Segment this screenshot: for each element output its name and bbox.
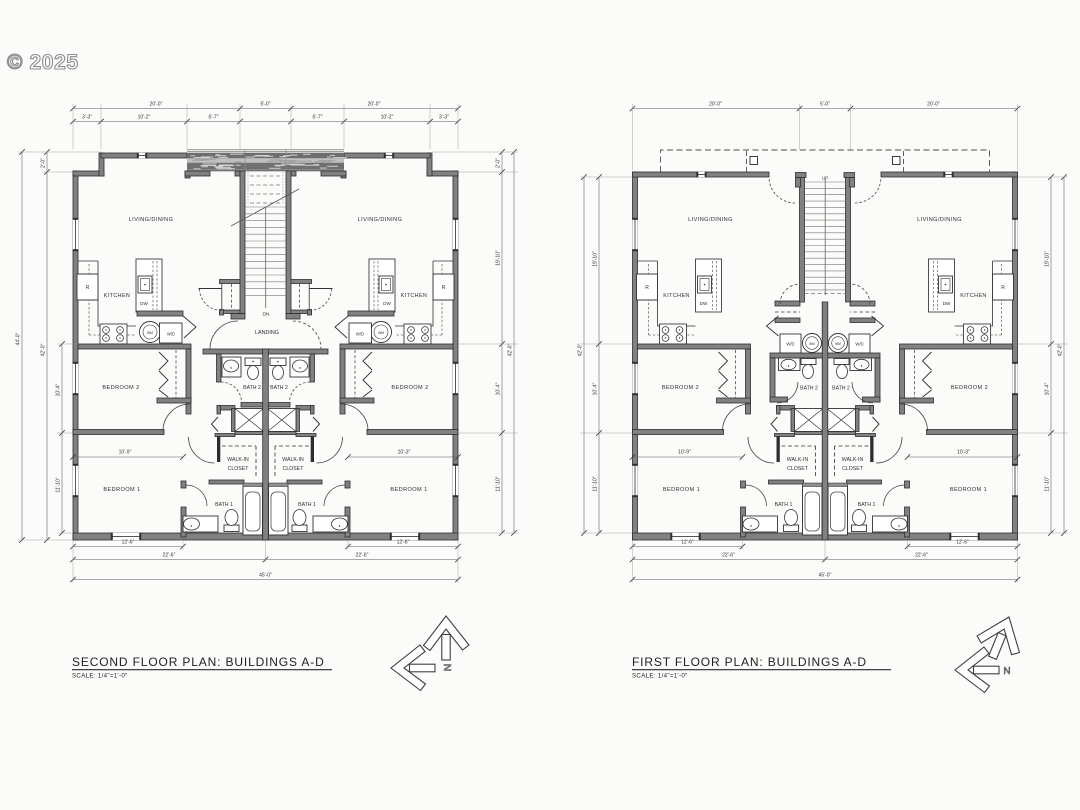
svg-text:SCALE: 1/4"=1'-0": SCALE: 1/4"=1'-0" xyxy=(632,673,688,680)
svg-text:R: R xyxy=(442,285,446,291)
svg-text:DW: DW xyxy=(700,301,708,306)
svg-text:W/D: W/D xyxy=(356,332,364,337)
svg-text:22'-6": 22'-6" xyxy=(722,553,735,559)
svg-text:6'-7": 6'-7" xyxy=(209,115,219,121)
svg-text:BEDROOM 2: BEDROOM 2 xyxy=(102,385,139,391)
svg-text:BEDROOM 1: BEDROOM 1 xyxy=(390,487,427,493)
svg-text:20'-0": 20'-0" xyxy=(150,102,163,108)
svg-text:WM: WM xyxy=(809,342,815,346)
svg-text:6'-7": 6'-7" xyxy=(313,115,323,121)
svg-text:42'-0": 42'-0" xyxy=(41,343,47,356)
svg-text:LIVING/DINING: LIVING/DINING xyxy=(129,217,174,223)
svg-text:WM: WM xyxy=(835,342,841,346)
svg-text:W/D: W/D xyxy=(167,332,175,337)
svg-text:SECOND FLOOR PLAN: BUILDINGS A: SECOND FLOOR PLAN: BUILDINGS A-D xyxy=(72,655,325,669)
svg-text:DN: DN xyxy=(263,312,270,318)
svg-text:5'-0": 5'-0" xyxy=(261,102,271,108)
svg-text:22'-6": 22'-6" xyxy=(356,553,369,559)
svg-text:N: N xyxy=(1003,666,1010,677)
svg-text:BATH 1: BATH 1 xyxy=(775,502,793,508)
svg-text:45'-0": 45'-0" xyxy=(819,573,832,579)
svg-text:11'-10": 11'-10" xyxy=(496,476,502,491)
svg-text:WM: WM xyxy=(147,331,153,335)
svg-text:19'-10": 19'-10" xyxy=(1045,251,1051,267)
svg-text:10'-4": 10'-4" xyxy=(496,382,502,395)
svg-text:BEDROOM 2: BEDROOM 2 xyxy=(391,385,428,391)
svg-text:22'-6": 22'-6" xyxy=(163,553,176,559)
svg-text:CLOSET: CLOSET xyxy=(228,466,250,472)
svg-text:BATH 2: BATH 2 xyxy=(832,386,850,392)
svg-text:SCALE: 1/4"=1'-0": SCALE: 1/4"=1'-0" xyxy=(72,673,128,680)
svg-text:42'-0": 42'-0" xyxy=(1058,343,1064,356)
svg-text:WALK-IN: WALK-IN xyxy=(282,457,304,463)
svg-text:10'-9": 10'-9" xyxy=(678,450,691,456)
svg-text:BEDROOM 1: BEDROOM 1 xyxy=(950,487,987,493)
svg-text:DW: DW xyxy=(943,301,951,306)
svg-text:19'-10": 19'-10" xyxy=(496,250,502,266)
svg-text:10'-4": 10'-4" xyxy=(593,382,599,395)
svg-text:19'-10": 19'-10" xyxy=(593,251,599,267)
svg-text:W/D: W/D xyxy=(786,342,794,347)
svg-text:2'-0": 2'-0" xyxy=(496,158,502,168)
svg-text:11'-10": 11'-10" xyxy=(1045,476,1051,491)
svg-text:BATH 2: BATH 2 xyxy=(800,386,818,392)
svg-text:BATH 1: BATH 1 xyxy=(215,502,233,508)
svg-text:12'-6": 12'-6" xyxy=(681,540,694,546)
svg-text:FIRST FLOOR PLAN: BUILDINGS A-: FIRST FLOOR PLAN: BUILDINGS A-D xyxy=(632,655,867,669)
svg-text:BEDROOM 2: BEDROOM 2 xyxy=(951,385,988,391)
svg-text:11'-10": 11'-10" xyxy=(56,477,62,492)
svg-text:UP: UP xyxy=(822,176,828,181)
svg-text:10'-9": 10'-9" xyxy=(119,450,132,456)
svg-text:WALK-IN: WALK-IN xyxy=(787,457,809,463)
svg-text:BATH 2: BATH 2 xyxy=(270,385,288,391)
svg-text:LIVING/DINING: LIVING/DINING xyxy=(917,217,962,223)
svg-text:5'-0": 5'-0" xyxy=(820,102,830,108)
svg-text:BATH 1: BATH 1 xyxy=(858,502,876,508)
svg-text:DW: DW xyxy=(140,301,148,306)
svg-text:LIVING/DINING: LIVING/DINING xyxy=(688,217,733,223)
svg-text:45'-0": 45'-0" xyxy=(259,573,272,579)
svg-text:WALK-IN: WALK-IN xyxy=(842,457,864,463)
svg-text:2'-0": 2'-0" xyxy=(41,158,47,168)
svg-text:CLOSET: CLOSET xyxy=(842,466,864,472)
svg-text:10'-2": 10'-2" xyxy=(138,115,151,121)
svg-text:DW: DW xyxy=(383,301,391,306)
svg-text:LIVING/DINING: LIVING/DINING xyxy=(358,217,403,223)
svg-text:42'-0": 42'-0" xyxy=(578,343,584,356)
svg-text:LANDING: LANDING xyxy=(255,330,279,336)
svg-text:12'-6": 12'-6" xyxy=(122,540,135,546)
svg-text:20'-0": 20'-0" xyxy=(709,102,722,108)
svg-text:11'-10": 11'-10" xyxy=(593,476,599,491)
svg-text:KITCHEN: KITCHEN xyxy=(663,293,689,299)
svg-text:WM: WM xyxy=(378,331,384,335)
svg-text:WALK-IN: WALK-IN xyxy=(227,457,249,463)
svg-text:KITCHEN: KITCHEN xyxy=(104,293,130,299)
svg-text:20'-0": 20'-0" xyxy=(368,102,381,108)
svg-text:3'-3": 3'-3" xyxy=(439,115,449,121)
svg-text:10'-4": 10'-4" xyxy=(56,383,62,396)
svg-text:12'-6": 12'-6" xyxy=(397,540,410,546)
svg-text:42'-0": 42'-0" xyxy=(508,343,514,356)
svg-text:R: R xyxy=(645,285,649,291)
svg-text:20'-0": 20'-0" xyxy=(927,102,940,108)
svg-text:BATH 2: BATH 2 xyxy=(243,385,261,391)
svg-text:BEDROOM 2: BEDROOM 2 xyxy=(662,385,699,391)
svg-text:W/D: W/D xyxy=(855,342,863,347)
svg-text:10'-2": 10'-2" xyxy=(381,115,394,121)
svg-text:R: R xyxy=(1001,285,1005,291)
svg-text:R: R xyxy=(86,285,90,291)
svg-text:10'-3": 10'-3" xyxy=(957,450,970,456)
svg-text:BEDROOM 1: BEDROOM 1 xyxy=(663,487,700,493)
svg-text:22'-6": 22'-6" xyxy=(915,553,928,559)
svg-text:BATH 1: BATH 1 xyxy=(298,502,316,508)
svg-text:44'-0": 44'-0" xyxy=(16,332,22,345)
svg-text:3'-3": 3'-3" xyxy=(82,115,92,121)
svg-text:10'-3": 10'-3" xyxy=(398,450,411,456)
svg-text:BEDROOM 1: BEDROOM 1 xyxy=(103,487,140,493)
svg-text:© 2025: © 2025 xyxy=(7,51,79,74)
svg-text:10'-4": 10'-4" xyxy=(1045,382,1051,395)
svg-text:CLOSET: CLOSET xyxy=(283,466,305,472)
svg-text:KITCHEN: KITCHEN xyxy=(960,293,986,299)
svg-text:CLOSET: CLOSET xyxy=(787,466,809,472)
svg-text:KITCHEN: KITCHEN xyxy=(401,293,427,299)
svg-text:N: N xyxy=(441,664,452,671)
svg-text:12'-6": 12'-6" xyxy=(956,540,969,546)
